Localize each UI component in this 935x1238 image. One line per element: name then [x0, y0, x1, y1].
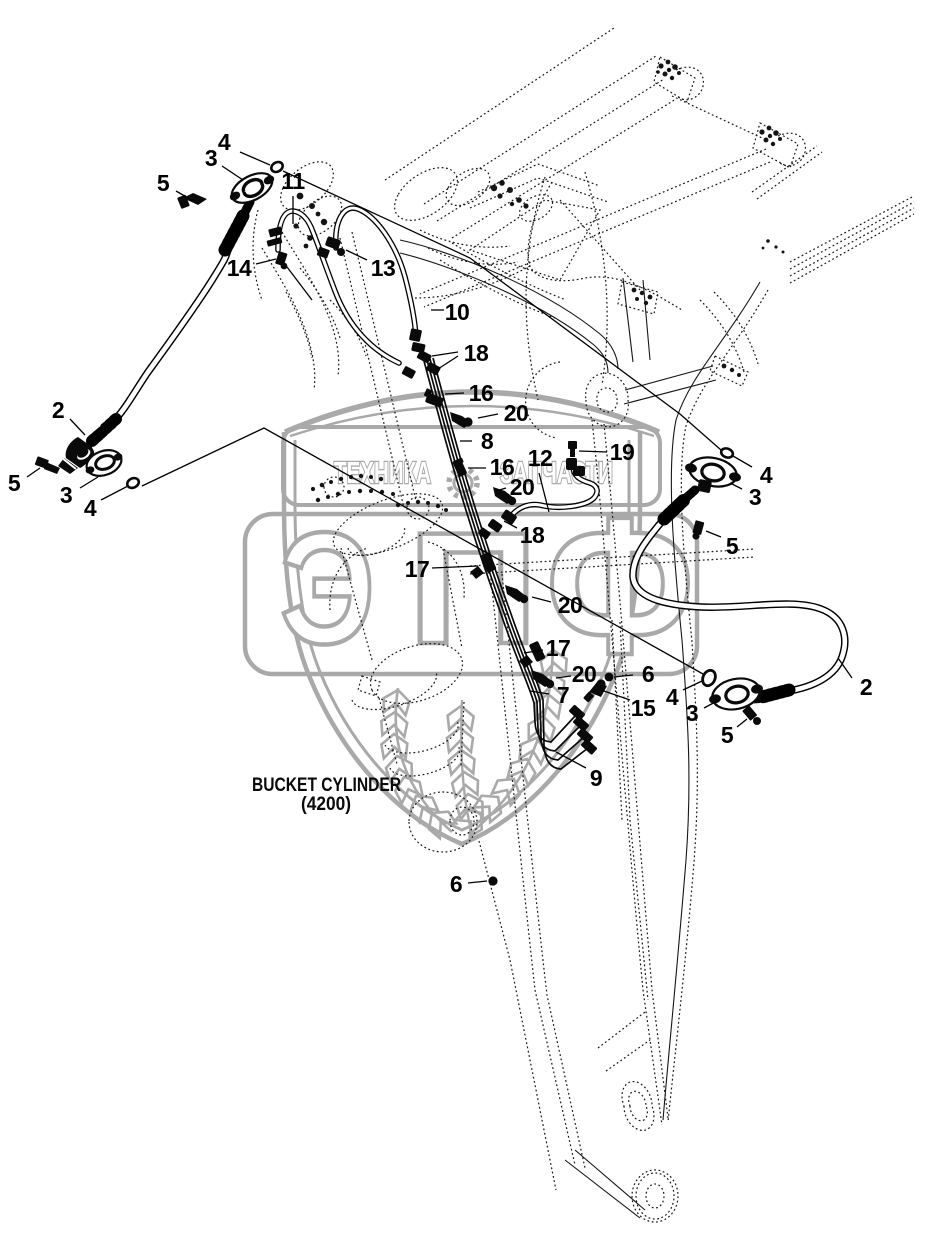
- svg-text:BUCKET CYLINDER: BUCKET CYLINDER: [252, 775, 401, 796]
- svg-text:18: 18: [464, 340, 489, 366]
- svg-text:9: 9: [590, 765, 602, 791]
- svg-text:4: 4: [760, 462, 773, 488]
- svg-text:20: 20: [572, 661, 597, 687]
- svg-text:2: 2: [52, 397, 64, 423]
- svg-text:19: 19: [610, 439, 635, 465]
- svg-text:4: 4: [84, 495, 97, 521]
- svg-text:16: 16: [469, 380, 494, 406]
- svg-text:ТЕХНИКА: ТЕХНИКА: [334, 455, 431, 490]
- svg-text:17: 17: [546, 635, 571, 661]
- svg-text:6: 6: [642, 661, 654, 687]
- svg-text:(4200): (4200): [301, 794, 351, 815]
- svg-text:3: 3: [749, 484, 761, 510]
- svg-text:11: 11: [281, 168, 305, 194]
- svg-text:3: 3: [686, 700, 698, 726]
- svg-text:20: 20: [558, 592, 583, 618]
- svg-text:3: 3: [205, 145, 217, 171]
- svg-text:15: 15: [631, 695, 656, 721]
- svg-text:14: 14: [227, 255, 252, 281]
- svg-text:13: 13: [371, 255, 396, 281]
- svg-text:5: 5: [8, 470, 21, 496]
- svg-text:4: 4: [218, 129, 231, 155]
- svg-text:5: 5: [726, 533, 739, 559]
- svg-text:18: 18: [520, 522, 545, 548]
- svg-text:5: 5: [157, 170, 170, 196]
- svg-text:5: 5: [721, 722, 734, 748]
- svg-text:8: 8: [481, 428, 494, 454]
- svg-text:4: 4: [666, 684, 679, 710]
- svg-text:7: 7: [557, 682, 569, 708]
- svg-text:17: 17: [405, 556, 430, 582]
- svg-text:20: 20: [510, 474, 535, 500]
- svg-text:3: 3: [60, 482, 72, 508]
- svg-text:6: 6: [450, 871, 462, 897]
- svg-text:20: 20: [504, 400, 529, 426]
- svg-text:12: 12: [528, 445, 553, 471]
- svg-text:2: 2: [860, 674, 872, 700]
- svg-text:10: 10: [445, 299, 470, 325]
- svg-text:Э: Э: [280, 499, 375, 677]
